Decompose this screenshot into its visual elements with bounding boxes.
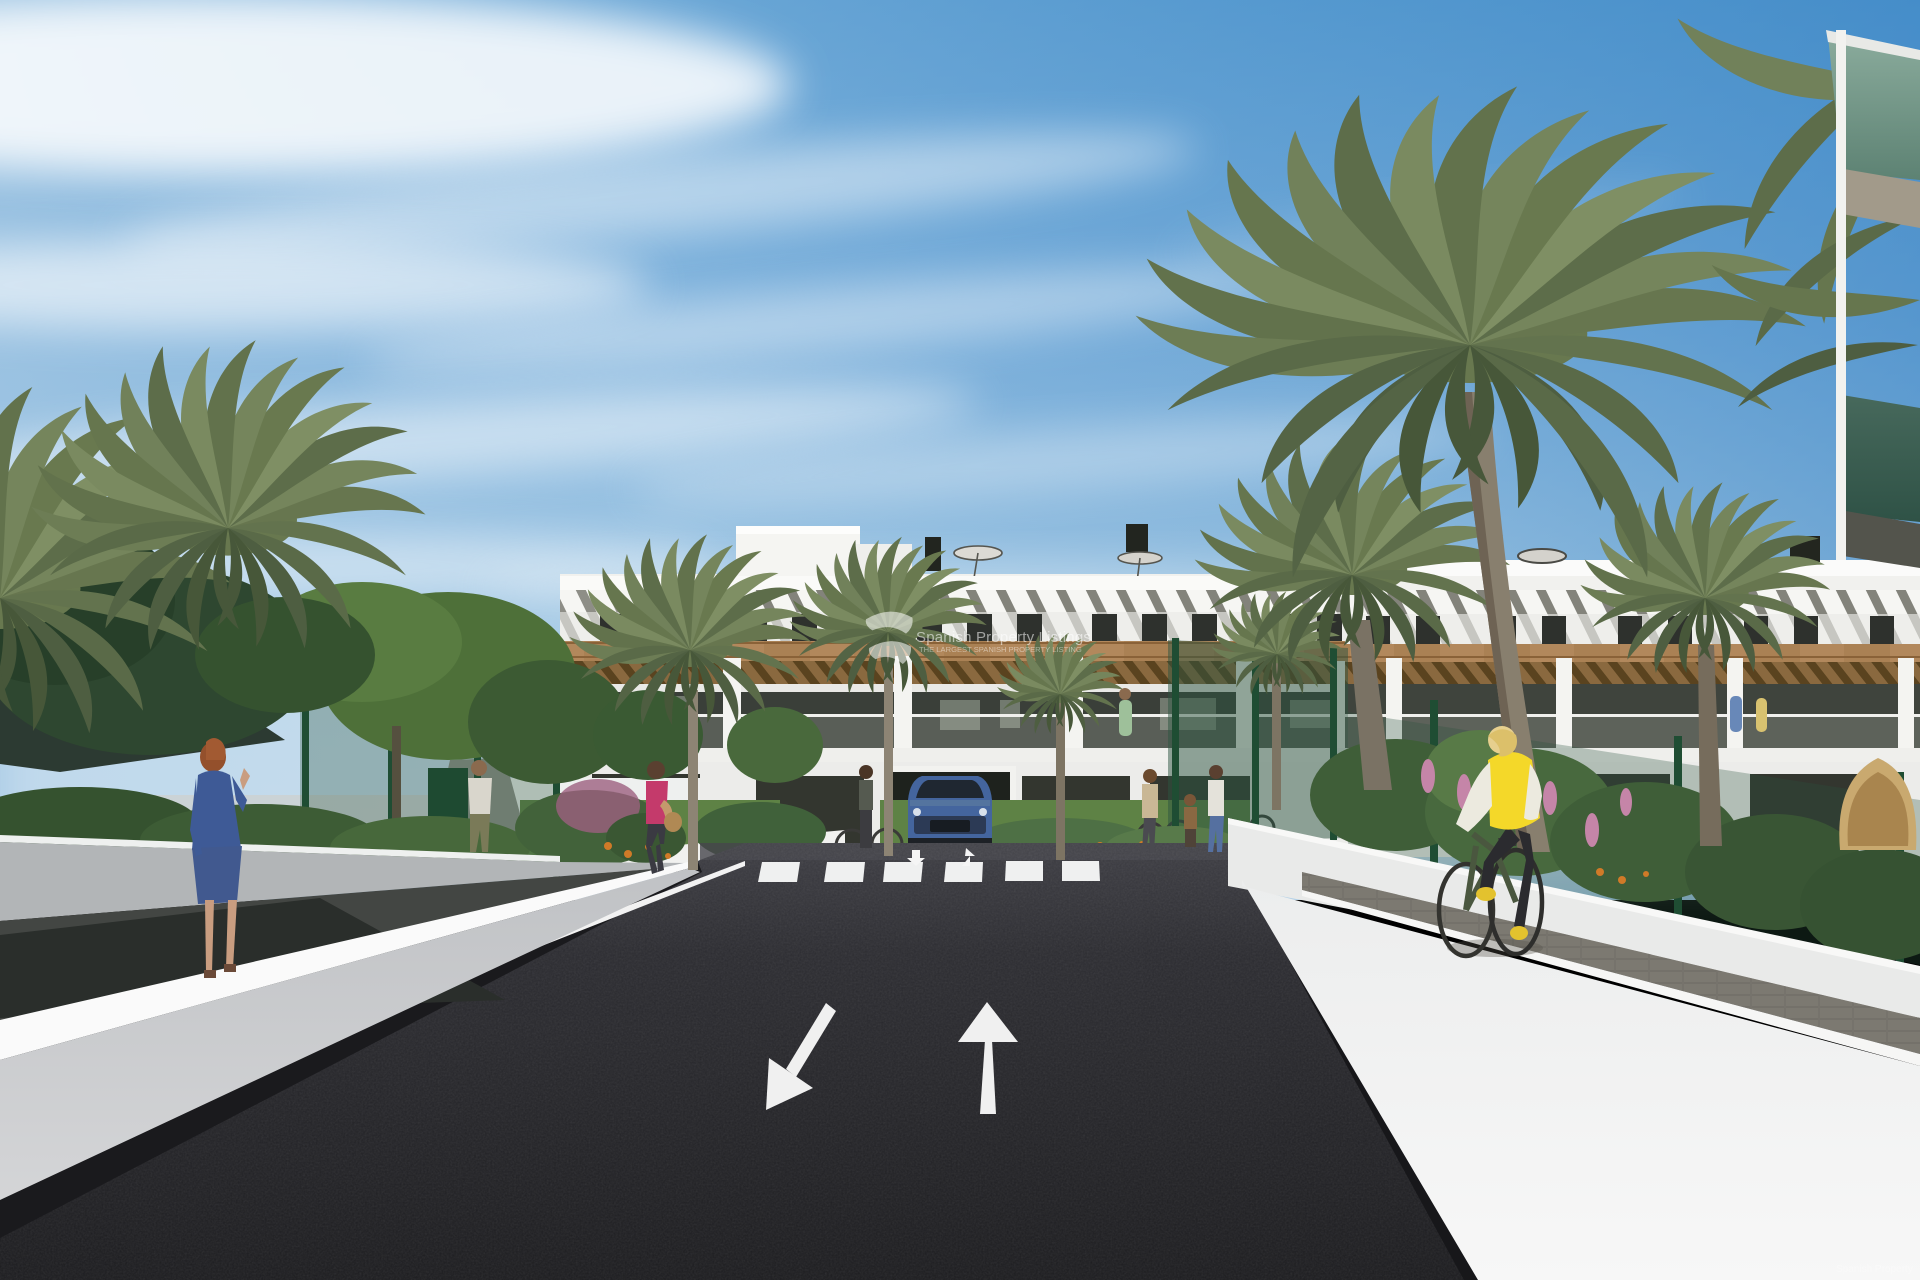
svg-text:Spanish Property Listings: Spanish Property Listings xyxy=(916,629,1091,646)
svg-text:Spanish Property: Spanish Property xyxy=(1836,1264,1913,1275)
svg-text:THE LARGEST SPANISH PROPERTY L: THE LARGEST SPANISH PROPERTY LISTING xyxy=(919,645,1082,654)
